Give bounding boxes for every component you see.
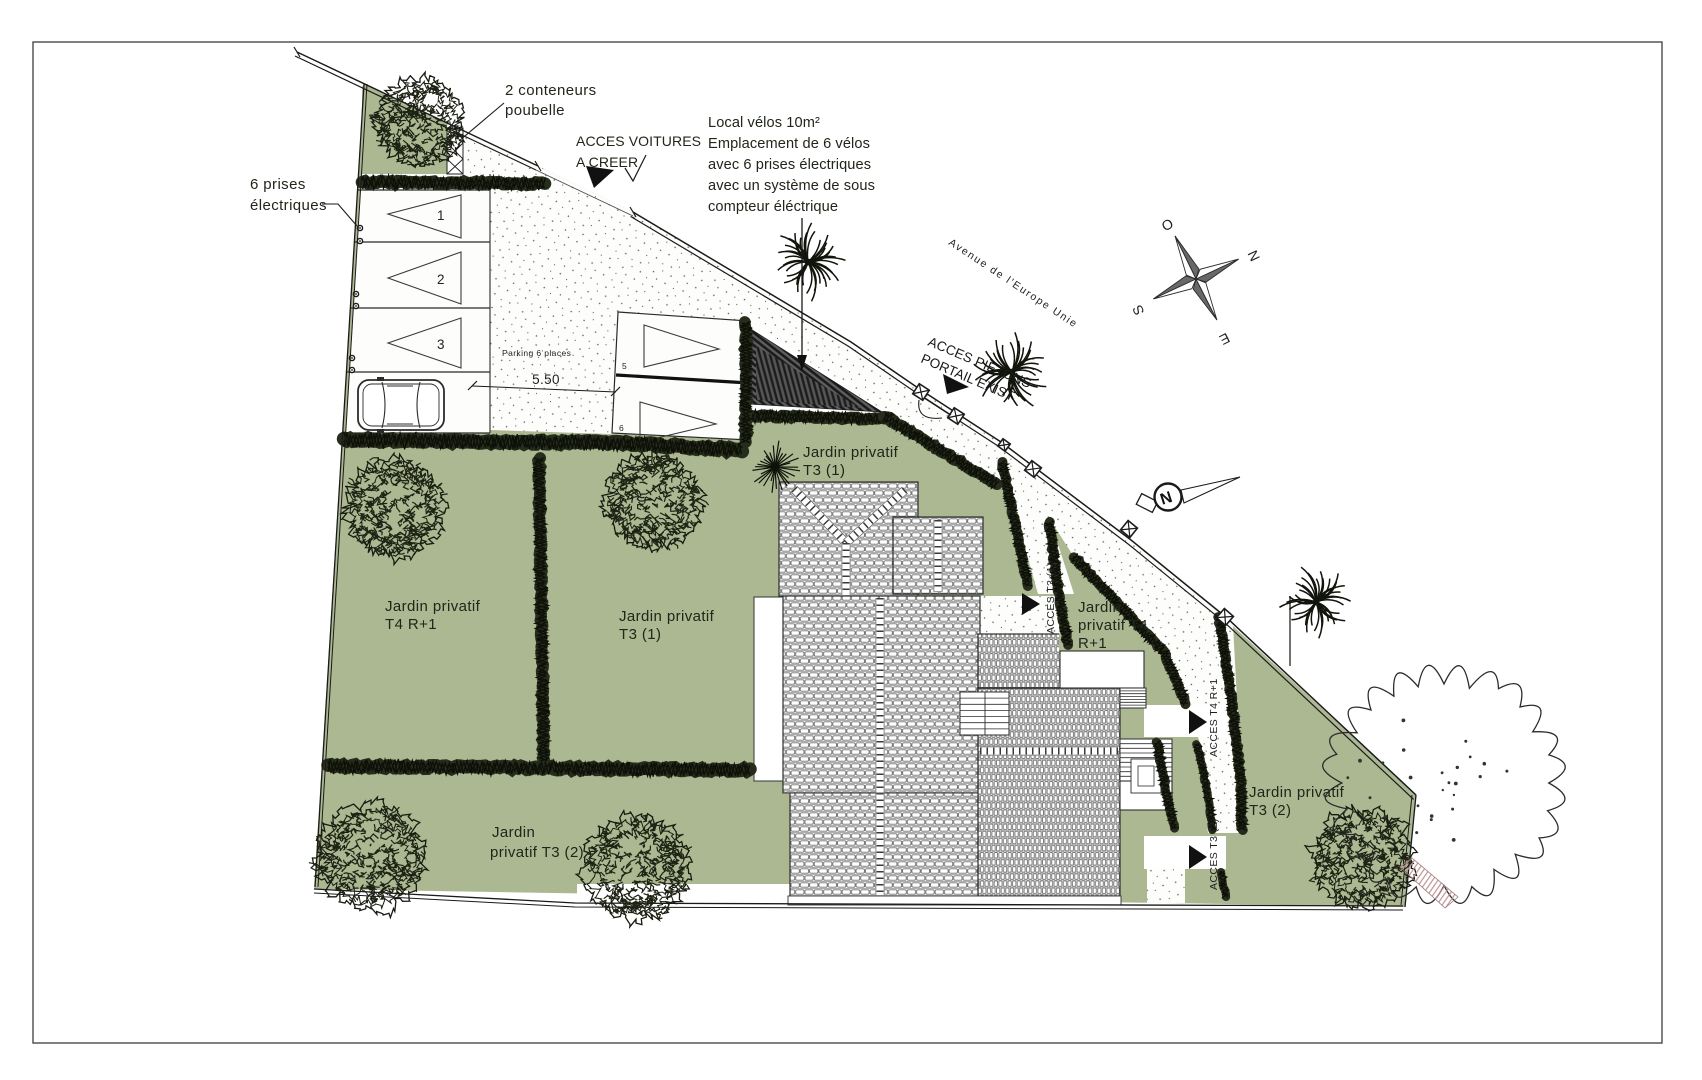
svg-text:Jardin privatif: Jardin privatif	[619, 608, 715, 625]
svg-text:5.50: 5.50	[532, 372, 560, 387]
svg-text:1: 1	[437, 208, 445, 223]
svg-text:3: 3	[437, 337, 445, 352]
svg-text:poubelle: poubelle	[505, 102, 565, 119]
svg-text:5: 5	[622, 361, 627, 371]
svg-text:électriques: électriques	[250, 197, 327, 214]
svg-text:avec un système de sous: avec un système de sous	[708, 178, 875, 194]
svg-text:6: 6	[619, 423, 624, 433]
svg-text:R+1: R+1	[1078, 635, 1107, 652]
svg-text:avec 6 prises électriques: avec 6 prises électriques	[708, 157, 871, 173]
svg-text:ACCES T3 (2): ACCES T3 (2)	[1208, 818, 1220, 890]
svg-text:privatif T4: privatif T4	[1078, 617, 1148, 634]
svg-text:privatif T3 (2): privatif T3 (2)	[490, 844, 584, 861]
svg-text:Emplacement de 6 vélos: Emplacement de 6 vélos	[708, 136, 870, 152]
svg-text:A CREER: A CREER	[576, 154, 638, 170]
svg-text:Jardin privatif: Jardin privatif	[1249, 784, 1345, 801]
svg-text:Jardin: Jardin	[1078, 599, 1121, 616]
svg-text:T3 (1): T3 (1)	[619, 626, 661, 643]
svg-text:T4 R+1: T4 R+1	[385, 616, 437, 633]
svg-text:compteur éléctrique: compteur éléctrique	[708, 199, 838, 215]
svg-text:Local vélos 10m²: Local vélos 10m²	[708, 115, 820, 131]
svg-text:Jardin privatif: Jardin privatif	[385, 598, 481, 615]
svg-text:6 prises: 6 prises	[250, 176, 306, 193]
svg-text:Jardin: Jardin	[492, 824, 535, 841]
svg-text:T3 (1): T3 (1)	[803, 462, 845, 479]
svg-text:Parking 6 places: Parking 6 places	[502, 348, 571, 358]
svg-text:Jardin privatif: Jardin privatif	[803, 444, 899, 461]
svg-text:ACCES VOITURES: ACCES VOITURES	[576, 133, 701, 149]
svg-text:2: 2	[437, 272, 445, 287]
svg-text:T3 (2): T3 (2)	[1249, 802, 1291, 819]
svg-text:2 conteneurs: 2 conteneurs	[505, 82, 597, 99]
svg-text:ACCES T3 (1): ACCES T3 (1)	[1045, 562, 1057, 634]
svg-text:ACCES T4 R+1: ACCES T4 R+1	[1208, 679, 1220, 757]
